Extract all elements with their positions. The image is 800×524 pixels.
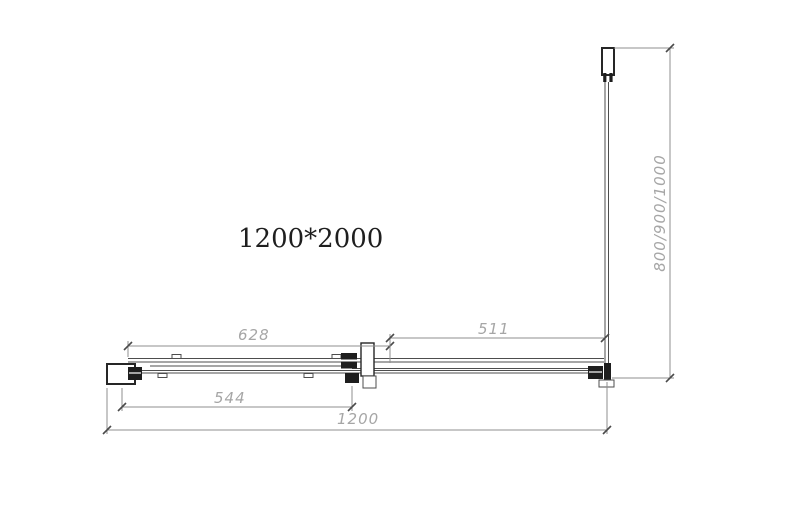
drawing-canvas: 628 511 544 1200 800/900/1000 1200*2000 bbox=[0, 0, 800, 524]
side-panel-view bbox=[602, 48, 614, 364]
dim-1200-label: 1200 bbox=[337, 410, 379, 428]
drawing-title: 1200*2000 bbox=[238, 224, 370, 254]
wall-profile-leg bbox=[603, 73, 606, 82]
rail-stopper-tab bbox=[332, 355, 341, 359]
roller-bracket-foot bbox=[363, 376, 376, 388]
rail-stopper-tab bbox=[304, 374, 313, 378]
wall-profile-leg bbox=[609, 73, 612, 82]
dim-544-label: 544 bbox=[214, 389, 246, 407]
side-panel-wall-profile bbox=[602, 48, 614, 75]
middle-clamp-foot bbox=[345, 373, 359, 383]
rail-stopper-tab bbox=[172, 355, 181, 359]
rail-stopper-tab bbox=[158, 374, 167, 378]
technical-drawing bbox=[0, 0, 800, 524]
dim-628-label: 628 bbox=[238, 326, 270, 344]
dim-511-label: 511 bbox=[478, 320, 510, 338]
middle-clamp-upper bbox=[341, 353, 357, 360]
middle-clamp-lower bbox=[341, 362, 357, 369]
corner-post bbox=[604, 363, 611, 381]
dim-depth-label: 800/900/1000 bbox=[651, 143, 667, 283]
roller-bracket bbox=[361, 343, 374, 376]
door-track-view bbox=[107, 343, 614, 388]
